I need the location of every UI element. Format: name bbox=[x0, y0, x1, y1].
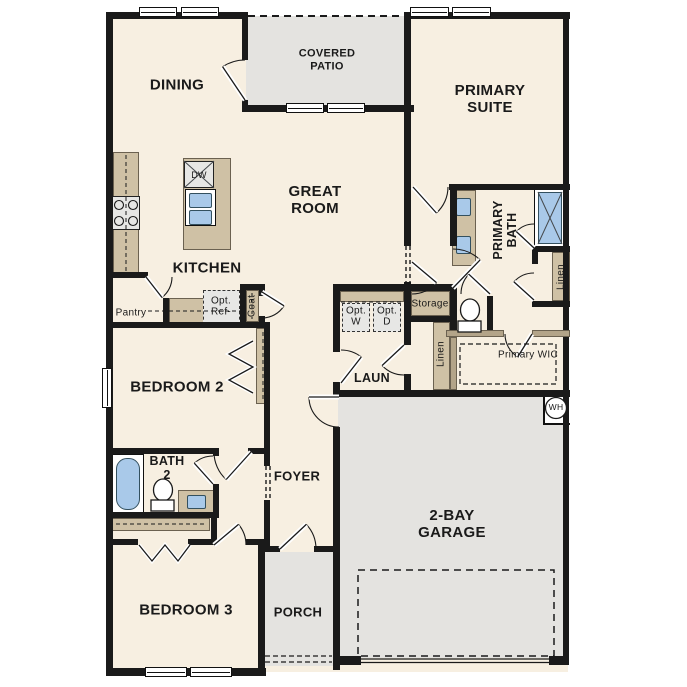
wall bbox=[314, 546, 340, 552]
closet-label-pantry: Pantry bbox=[116, 307, 147, 318]
shower-pan bbox=[538, 192, 562, 244]
wall bbox=[450, 190, 457, 246]
kitchen-counter bbox=[169, 298, 204, 325]
floor-plan: DINING COVERED PATIO PRIMARY SUITE GREAT… bbox=[0, 0, 687, 687]
wall bbox=[563, 12, 569, 665]
wall bbox=[404, 12, 411, 246]
wic-wall bbox=[446, 330, 504, 337]
wall bbox=[106, 539, 138, 545]
wall bbox=[188, 539, 214, 545]
wall bbox=[259, 284, 265, 296]
wall bbox=[246, 539, 270, 545]
sink-basin bbox=[456, 236, 471, 254]
window bbox=[181, 7, 219, 17]
range bbox=[111, 196, 140, 230]
sink-basin bbox=[187, 495, 206, 509]
room-label-covered-patio: COVERED PATIO bbox=[287, 47, 367, 72]
wall bbox=[242, 12, 248, 60]
room-label-bath-2: BATH 2 bbox=[145, 454, 189, 483]
wall bbox=[106, 272, 148, 278]
room-label-garage: 2-BAY GARAGE bbox=[397, 507, 507, 541]
room-label-kitchen: KITCHEN bbox=[173, 259, 242, 276]
wall bbox=[404, 282, 411, 345]
wic-wall bbox=[450, 337, 457, 390]
appliance-label-dishwasher: DW bbox=[191, 170, 207, 180]
wall bbox=[449, 184, 570, 190]
wall bbox=[411, 284, 453, 291]
window bbox=[452, 7, 491, 17]
window bbox=[145, 667, 187, 677]
closet-label-coat: Coat bbox=[246, 295, 257, 317]
sink-basin bbox=[189, 210, 212, 225]
room-label-bedroom-2: BEDROOM 2 bbox=[130, 378, 224, 395]
laundry-counter bbox=[340, 291, 404, 302]
appliance-label-opt-dryer: Opt. D bbox=[372, 306, 402, 329]
sink-basin bbox=[189, 193, 212, 208]
window bbox=[410, 7, 449, 17]
room-label-primary-wic: Primary WIC bbox=[498, 349, 558, 360]
closet-label-storage: Storage bbox=[411, 298, 448, 309]
room-label-primary-bath: PRIMARY BATH bbox=[491, 193, 520, 267]
wall bbox=[264, 546, 280, 552]
window bbox=[190, 667, 232, 677]
room-label-foyer: FOYER bbox=[274, 470, 320, 485]
appliance-label-water-heater: WH bbox=[549, 403, 564, 413]
wall bbox=[333, 284, 340, 352]
wall bbox=[532, 301, 570, 307]
wall bbox=[106, 12, 248, 19]
closet-label-linen-primary: Linen bbox=[555, 264, 566, 290]
wall bbox=[106, 12, 113, 676]
bathtub bbox=[116, 458, 140, 510]
wall bbox=[333, 656, 361, 665]
wall bbox=[240, 284, 246, 328]
wall bbox=[549, 656, 569, 665]
bedroom3-closet-shelf bbox=[112, 518, 210, 531]
wall bbox=[333, 284, 411, 291]
wall bbox=[532, 252, 538, 264]
wall bbox=[264, 408, 270, 466]
wall bbox=[106, 512, 216, 518]
room-label-primary-suite: PRIMARY SUITE bbox=[435, 82, 545, 116]
wall bbox=[333, 390, 570, 397]
window bbox=[102, 368, 112, 408]
room-label-laundry: LAUN bbox=[354, 371, 390, 385]
wall bbox=[404, 316, 457, 322]
room-label-bedroom-3: BEDROOM 3 bbox=[139, 601, 233, 618]
appliance-label-opt-ref: Opt. Ref- bbox=[203, 296, 239, 319]
window bbox=[327, 103, 365, 113]
window bbox=[286, 103, 324, 113]
window bbox=[139, 7, 177, 17]
wic-wall bbox=[532, 330, 570, 337]
wall bbox=[258, 545, 265, 676]
room-label-dining: DINING bbox=[150, 76, 204, 93]
sink-basin bbox=[456, 198, 471, 216]
wall bbox=[248, 448, 270, 454]
closet-label-linen-hall: Linen bbox=[435, 341, 446, 367]
appliance-label-opt-washer: Opt. W bbox=[341, 306, 371, 329]
room-label-great-room: GREAT ROOM bbox=[275, 183, 355, 217]
room-label-porch: PORCH bbox=[274, 606, 322, 621]
wall bbox=[264, 322, 270, 408]
